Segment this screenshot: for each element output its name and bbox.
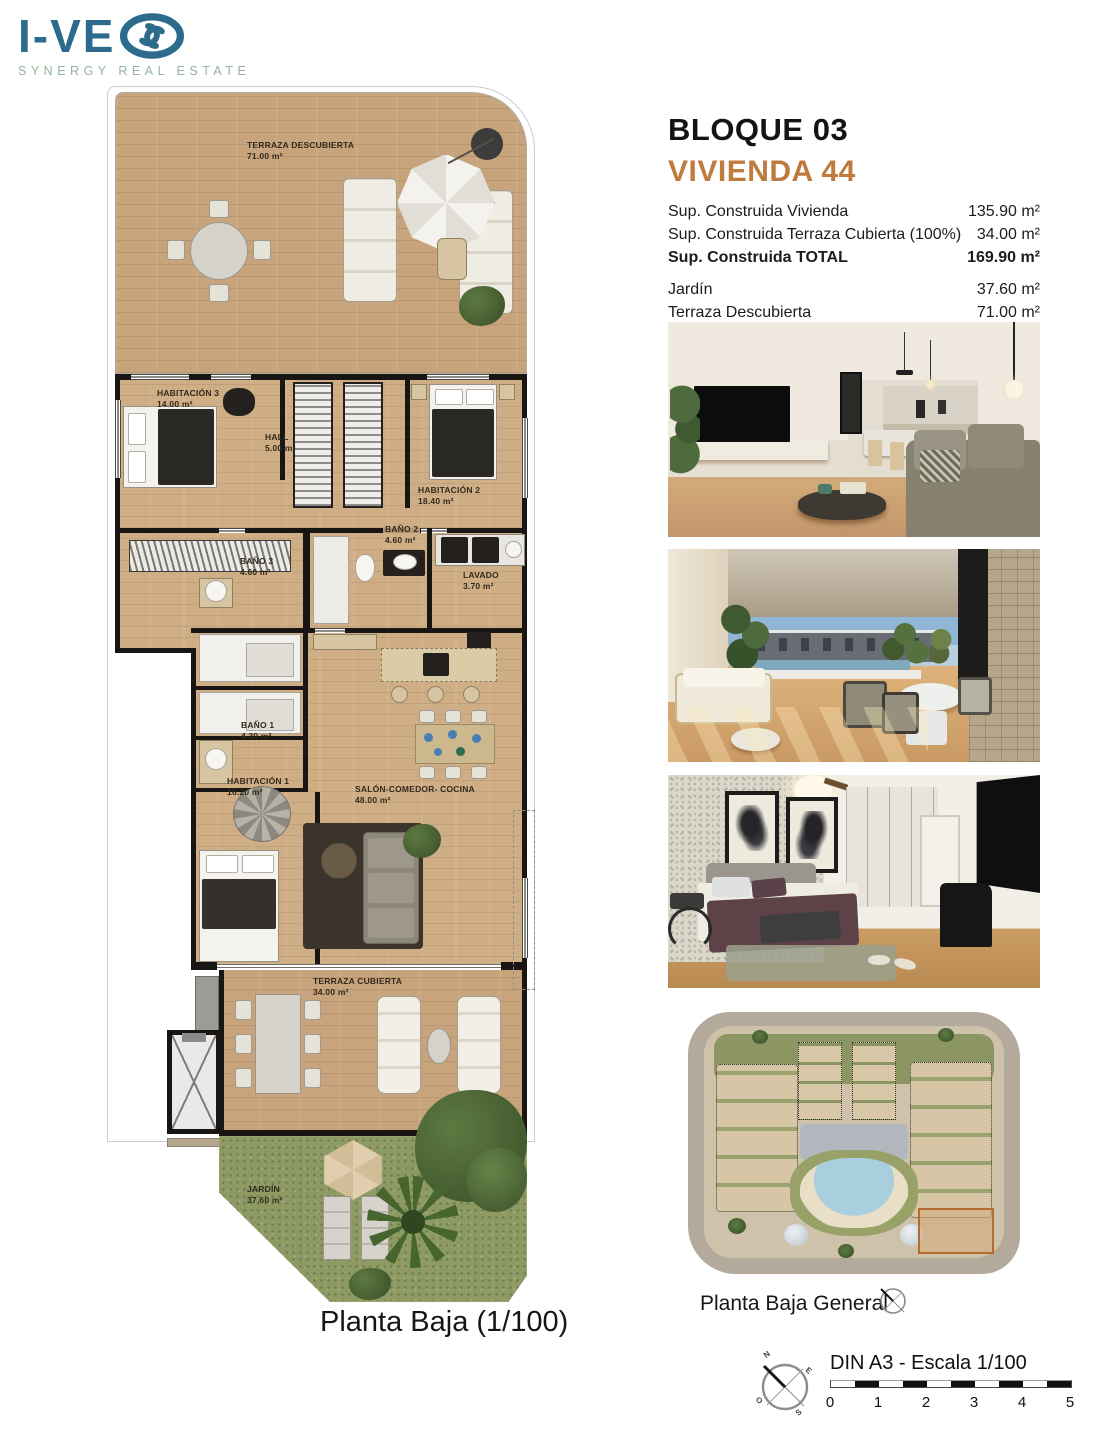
area-table: Sup. Construida Vivienda 135.90 m² Sup. … [668,200,1040,324]
room-label-bano3: BAÑO 34.60 m² [240,556,273,577]
chair [235,1000,252,1020]
chair [235,1068,252,1088]
nightstand [411,384,427,400]
site-plan-caption: Planta Baja General [700,1292,888,1316]
nightstand [499,384,515,400]
round-table [190,222,248,280]
chair [235,1034,252,1054]
area-label: Sup. Construida TOTAL [668,249,848,267]
chair [304,1034,321,1054]
sofa [343,178,397,302]
wardrobe [343,382,383,508]
dining-table [415,724,495,764]
area-value: 34.00 m² [977,226,1040,244]
chair [304,1000,321,1020]
chair [209,284,229,302]
washer [472,537,499,563]
stool [463,686,480,703]
washer [441,537,468,563]
room-label-jardin: JARDÍN37.60 m² [247,1184,283,1205]
bedroom-render [668,775,1040,988]
brand-logo: I-VE SYNERGY REAL ESTATE [18,12,250,78]
chair [167,240,185,260]
room-label-habitacion3: HABITACIÓN 314.00 m² [157,388,219,409]
chair [445,766,461,779]
chair [419,766,435,779]
area-label: Terraza Descubierta [668,304,811,322]
elevator-threshold [167,1138,221,1147]
chair [471,710,487,723]
plan-caption: Planta Baja (1/100) [320,1306,568,1339]
stool [427,686,444,703]
pergola-dashed-outline [513,810,535,990]
floor-plan: TERRAZA DESCUBIERTA 71.00 m² [115,88,535,1303]
area-value: 71.00 m² [977,304,1040,322]
terrace-render [668,549,1040,762]
room-label-salon: SALÓN-COMEDOR- COCINA48.00 m² [355,784,475,805]
area-row: Sup. Construida Terraza Cubierta (100%) … [668,223,1040,246]
highlighted-unit [918,1208,994,1254]
wardrobe [293,382,333,508]
bed-habitacion2 [429,384,497,480]
kitchen-counter [313,634,377,650]
chair [419,710,435,723]
shower-room [199,634,301,682]
area-label: Sup. Construida Terraza Cubierta (100%) [668,226,961,244]
area-label: Sup. Construida Vivienda [668,203,848,221]
block-title: BLOQUE 03 [668,112,848,148]
chair [223,388,255,416]
logo-tagline: SYNERGY REAL ESTATE [18,64,250,78]
parasol-base [471,128,503,160]
glass-wall [191,964,527,968]
bed-habitacion3 [123,406,217,488]
sofa [457,996,501,1094]
room-label-habitacion2: HABITACIÓN 218.40 m² [418,485,480,506]
room-label-habitacion1: HABITACIÓN 116.20 m² [227,776,289,797]
scalebar-title: DIN A3 - Escala 1/100 [830,1352,1027,1375]
sink [205,748,227,770]
room-label-terraza-cubierta: TERRAZA CUBIERTA34.00 m² [313,976,402,997]
unit-title: VIVIENDA 44 [668,155,856,189]
area-row: Terraza Descubierta 71.00 m² [668,301,1040,324]
sink [393,554,417,570]
chair [253,240,271,260]
side-table [427,1028,451,1064]
logo-o-swirl-icon [119,12,185,60]
room-label-lavado: LAVADO3.70 m² [463,570,499,591]
living-room-render [668,322,1040,537]
chair [445,710,461,723]
concrete-wall [195,976,219,1032]
area-row: Sup. Construida Vivienda 135.90 m² [668,200,1040,223]
area-value: 37.60 m² [977,281,1040,299]
compass-small-icon [874,1282,910,1318]
stool [391,686,408,703]
outdoor-table [255,994,301,1094]
area-label: Jardín [668,281,712,299]
room-label-terraza-descubierta: TERRAZA DESCUBIERTA 71.00 m² [247,140,354,161]
chair [471,766,487,779]
sink [205,580,227,602]
hob [423,653,449,676]
area-value: 169.90 m² [967,249,1040,267]
scalebar [830,1380,1072,1388]
area-row: Jardín 37.60 m² [668,278,1040,301]
logo-text: I-VE [18,13,115,59]
chair [304,1068,321,1088]
area-row-total: Sup. Construida TOTAL 169.90 m² [668,246,1040,269]
sun-lounger [323,1196,351,1260]
bed-habitacion1 [199,850,279,962]
chair [209,200,229,218]
room-label-bano2: BAÑO 24.60 m² [383,524,420,545]
elevator [167,1030,221,1134]
lounge-seat [437,238,467,280]
palm-tree-icon [367,1176,459,1268]
area-value: 135.90 m² [968,203,1040,221]
room-label-hall: HALL5.00 m² [265,432,296,453]
room-label-bano1: BAÑO 14.30 m² [241,720,274,741]
site-plan-render [688,1012,1020,1274]
shower [313,536,349,624]
sink [505,541,522,558]
sofa [377,996,421,1094]
compass-icon: N E O S [754,1352,816,1418]
toilet [355,554,375,582]
exterior-notch [115,648,191,970]
